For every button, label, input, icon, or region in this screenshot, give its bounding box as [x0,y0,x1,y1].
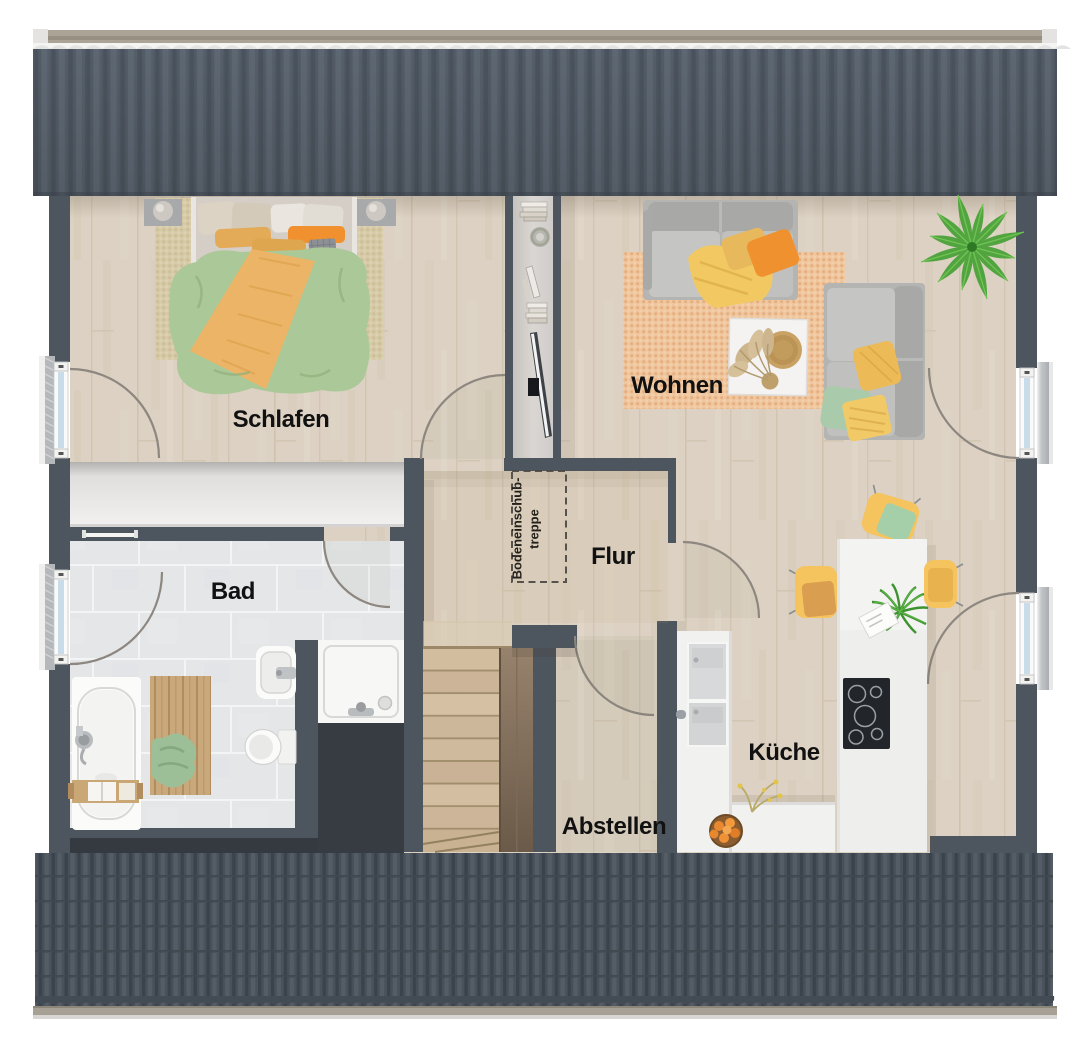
svg-text:Wohnen: Wohnen [631,372,723,399]
svg-text:Schlafen: Schlafen [233,406,330,433]
svg-text:Flur: Flur [591,543,635,570]
svg-text:Bad: Bad [211,578,255,605]
svg-text:Küche: Küche [748,739,819,766]
svg-text:Abstellen: Abstellen [562,813,666,840]
